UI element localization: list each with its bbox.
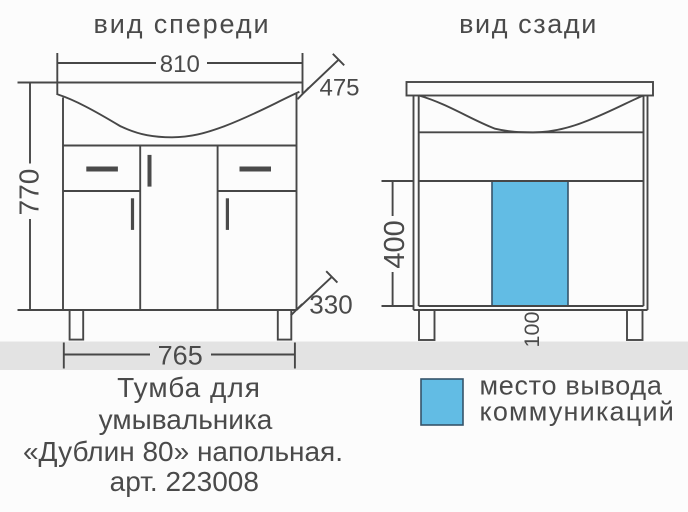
svg-text:арт. 223008: арт. 223008 (110, 466, 259, 497)
svg-text:умывальника: умывальника (99, 404, 273, 435)
svg-text:Тумба для: Тумба для (117, 372, 261, 403)
svg-text:вид спереди: вид спереди (94, 9, 271, 39)
svg-text:765: 765 (158, 341, 203, 371)
svg-text:коммуникаций: коммуникаций (480, 397, 676, 427)
svg-text:400: 400 (379, 220, 411, 268)
svg-text:100: 100 (520, 312, 544, 348)
svg-text:«Дублин 80» напольная.: «Дублин 80» напольная. (23, 436, 343, 467)
svg-text:вид сзади: вид сзади (459, 9, 598, 39)
svg-text:330: 330 (309, 290, 352, 320)
svg-text:810: 810 (160, 51, 200, 78)
svg-text:475: 475 (319, 75, 359, 102)
svg-text:770: 770 (13, 169, 44, 216)
